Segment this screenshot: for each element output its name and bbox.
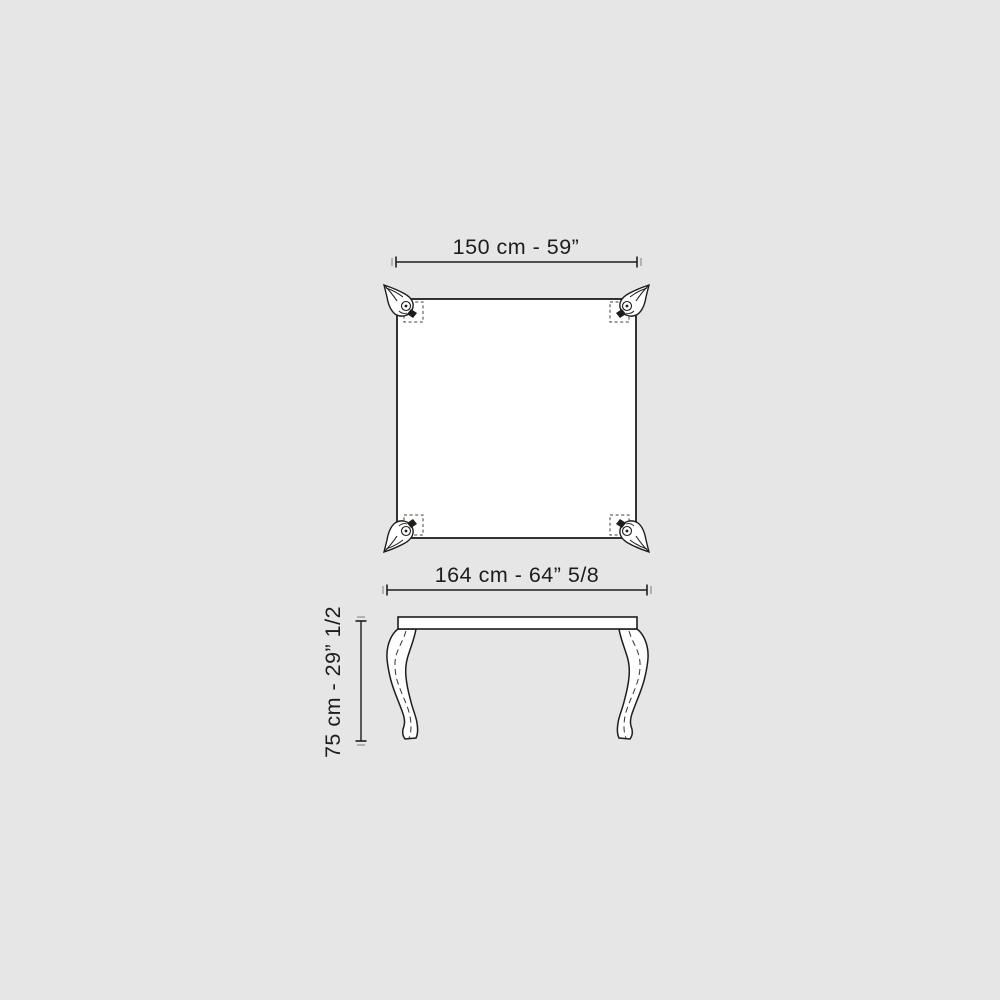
- leg-top-ornament-top-right: [616, 285, 649, 318]
- top-view: 150 cm - 59”: [384, 235, 649, 552]
- drawing-svg: 150 cm - 59” 164 cm - 64” 5/8: [0, 0, 1000, 1000]
- top-view-width-label: 150 cm - 59”: [453, 235, 580, 259]
- front-view-height-label: 75 cm - 29” 1/2: [321, 606, 345, 758]
- tabletop-top-view: [397, 299, 636, 538]
- front-view-height-dimension-line: [356, 617, 367, 745]
- front-view-width-label: 164 cm - 64” 5/8: [435, 563, 600, 587]
- leg-top-ornament-top-left: [384, 285, 417, 318]
- leg-top-ornament-bottom-right: [616, 519, 649, 552]
- product-dimension-drawing: 150 cm - 59” 164 cm - 64” 5/8: [0, 0, 1000, 1000]
- leg-top-ornament-bottom-left: [384, 519, 417, 552]
- tabletop-front-view: [398, 617, 637, 629]
- front-left-cabriole-leg: [387, 629, 418, 739]
- front-view: 164 cm - 64” 5/8 75 cm - 29” 1/2: [321, 563, 651, 758]
- front-right-cabriole-leg: [617, 629, 648, 739]
